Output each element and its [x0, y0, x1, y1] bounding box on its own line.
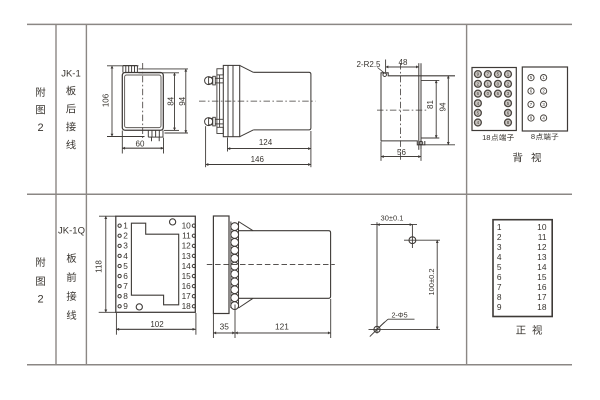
svg-text:100±0.2: 100±0.2	[427, 268, 436, 295]
svg-text:30±0.1: 30±0.1	[381, 213, 404, 222]
svg-text:5: 5	[497, 262, 502, 272]
svg-text:18: 18	[537, 302, 547, 312]
svg-text:15: 15	[537, 272, 547, 282]
svg-text:3: 3	[123, 241, 128, 251]
svg-text:124: 124	[259, 138, 273, 147]
svg-text:60: 60	[136, 139, 145, 148]
svg-text:8: 8	[531, 132, 535, 141]
svg-text:121: 121	[275, 321, 289, 331]
svg-text:1: 1	[497, 222, 502, 232]
svg-text:2-R2.5: 2-R2.5	[356, 60, 381, 69]
svg-text:17: 17	[182, 291, 192, 301]
svg-text:10: 10	[537, 222, 547, 232]
svg-text:6: 6	[497, 272, 502, 282]
svg-text:5: 5	[123, 261, 128, 271]
svg-text:8: 8	[497, 292, 502, 302]
svg-text:146: 146	[251, 155, 265, 164]
svg-text:2-Φ5: 2-Φ5	[391, 310, 407, 319]
svg-text:18: 18	[182, 301, 192, 311]
svg-text:4: 4	[123, 251, 128, 261]
svg-text:JK-1Q: JK-1Q	[58, 226, 85, 237]
svg-text:14: 14	[182, 261, 192, 271]
svg-text:14: 14	[537, 262, 547, 272]
svg-text:12: 12	[182, 241, 192, 251]
svg-text:11: 11	[538, 232, 547, 242]
svg-text:7: 7	[123, 281, 128, 291]
svg-text:12: 12	[537, 242, 547, 252]
svg-text:3: 3	[497, 242, 502, 252]
svg-text:4: 4	[497, 252, 502, 262]
svg-text:1: 1	[123, 221, 128, 231]
svg-text:8: 8	[123, 291, 128, 301]
svg-text:9: 9	[497, 302, 502, 312]
svg-text:6: 6	[123, 271, 128, 281]
svg-text:13: 13	[537, 252, 547, 262]
svg-text:2: 2	[37, 294, 43, 306]
svg-text:16: 16	[182, 281, 192, 291]
svg-text:7: 7	[497, 282, 502, 292]
svg-text:56: 56	[397, 148, 406, 157]
svg-text:94: 94	[439, 102, 448, 111]
svg-text:17: 17	[537, 292, 547, 302]
svg-text:18: 18	[482, 133, 490, 142]
svg-text:13: 13	[182, 251, 192, 261]
svg-text:102: 102	[150, 320, 164, 329]
svg-text:16: 16	[537, 282, 547, 292]
svg-text:106: 106	[102, 93, 111, 107]
svg-text:2: 2	[123, 231, 128, 241]
svg-text:9: 9	[123, 301, 128, 311]
svg-text:10: 10	[182, 221, 192, 231]
svg-text:84: 84	[166, 96, 175, 105]
svg-text:48: 48	[399, 58, 408, 67]
svg-text:118: 118	[95, 260, 104, 273]
svg-text:2: 2	[497, 232, 502, 242]
svg-text:JK-1: JK-1	[61, 69, 81, 80]
svg-text:81: 81	[426, 100, 435, 109]
svg-text:94: 94	[178, 96, 187, 105]
svg-text:11: 11	[182, 231, 191, 241]
svg-text:35: 35	[220, 321, 230, 331]
svg-text:2: 2	[37, 122, 43, 134]
svg-text:15: 15	[182, 271, 192, 281]
